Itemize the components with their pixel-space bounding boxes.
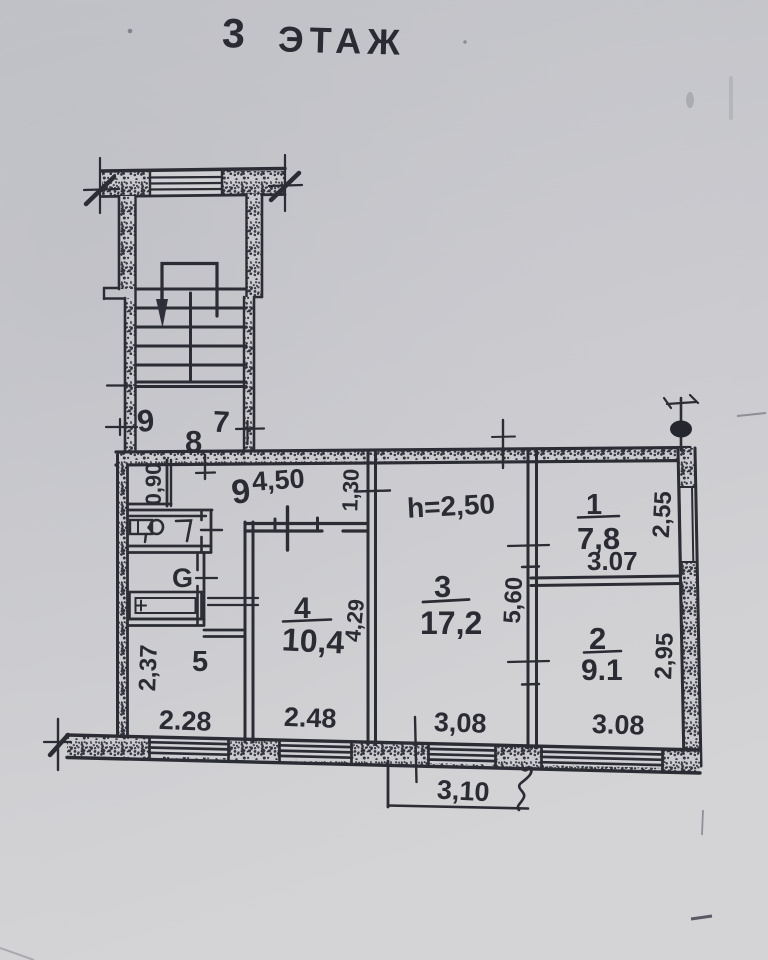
svg-text:h=2,50: h=2,50 bbox=[406, 488, 495, 524]
svg-text:3: 3 bbox=[222, 10, 246, 57]
svg-text:8: 8 bbox=[185, 424, 202, 459]
svg-text:3.08: 3.08 bbox=[591, 709, 645, 741]
svg-text:9.1: 9.1 bbox=[581, 654, 623, 687]
svg-text:10,4: 10,4 bbox=[281, 621, 345, 660]
svg-text:4,50: 4,50 bbox=[251, 463, 306, 497]
svg-text:5: 5 bbox=[192, 646, 208, 678]
svg-text:3,10: 3,10 bbox=[436, 775, 490, 808]
svg-text:17,2: 17,2 bbox=[420, 605, 482, 641]
svg-text:G: G bbox=[172, 563, 193, 593]
svg-text:4,29: 4,29 bbox=[340, 598, 369, 643]
svg-text:0,90: 0,90 bbox=[141, 463, 166, 506]
svg-text:7: 7 bbox=[212, 406, 230, 440]
svg-text:2,95: 2,95 bbox=[650, 632, 679, 680]
svg-text:1,30: 1,30 bbox=[337, 468, 363, 512]
svg-text:3,08: 3,08 bbox=[433, 707, 487, 739]
svg-text:2.28: 2.28 bbox=[158, 705, 212, 737]
svg-text:2.48: 2.48 bbox=[283, 702, 337, 734]
svg-text:ЭТАЖ: ЭТАЖ bbox=[277, 18, 406, 62]
svg-text:9: 9 bbox=[229, 472, 252, 512]
svg-text:3: 3 bbox=[434, 569, 451, 604]
svg-text:9: 9 bbox=[136, 403, 156, 439]
svg-text:3.07: 3.07 bbox=[587, 546, 638, 576]
svg-text:5,60: 5,60 bbox=[499, 576, 528, 624]
svg-text:2,37: 2,37 bbox=[134, 644, 163, 692]
svg-text:2,55: 2,55 bbox=[648, 491, 677, 539]
